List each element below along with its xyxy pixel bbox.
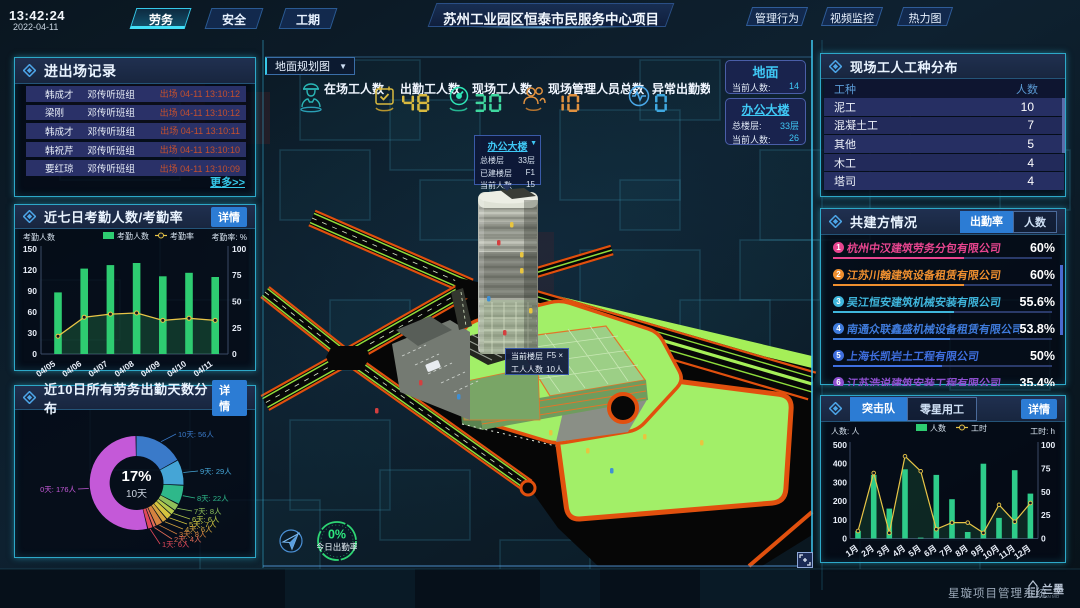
svg-text:5月: 5月 xyxy=(906,543,923,559)
svg-text:100: 100 xyxy=(1041,440,1055,450)
svg-text:0: 0 xyxy=(32,349,37,359)
svg-text:9天: 29人: 9天: 29人 xyxy=(200,467,232,476)
svg-text:50: 50 xyxy=(232,297,242,307)
svg-text:30: 30 xyxy=(28,328,38,338)
svg-text:考勤人数: 考勤人数 xyxy=(117,231,149,241)
svg-text:100: 100 xyxy=(833,515,847,525)
svg-text:100: 100 xyxy=(232,244,246,254)
svg-text:异常出勤数: 异常出勤数 xyxy=(652,81,710,96)
svg-text:人数: 人数 xyxy=(930,423,946,433)
svg-text:90: 90 xyxy=(28,286,38,296)
svg-text:0%: 0% xyxy=(328,528,346,542)
svg-text:7月: 7月 xyxy=(938,543,955,559)
svg-text:考勤率: 考勤率 xyxy=(170,231,194,241)
svg-text:N: N xyxy=(297,531,300,536)
svg-text:25: 25 xyxy=(1041,510,1051,520)
svg-text:现场工人数: 现场工人数 xyxy=(472,81,533,96)
svg-text:6月: 6月 xyxy=(922,543,939,559)
svg-text:1天: 6人: 1天: 6人 xyxy=(162,540,190,549)
svg-text:150: 150 xyxy=(23,244,37,254)
svg-text:12月: 12月 xyxy=(1012,543,1032,561)
svg-text:25: 25 xyxy=(232,323,242,333)
svg-text:10天: 56人: 10天: 56人 xyxy=(178,430,214,439)
svg-text:0: 0 xyxy=(842,534,847,544)
svg-text:今日出勤率: 今日出勤率 xyxy=(317,542,357,552)
svg-text:500: 500 xyxy=(833,440,847,450)
svg-text:10天: 10天 xyxy=(126,489,147,500)
svg-text:8月: 8月 xyxy=(953,543,970,559)
svg-text:4月: 4月 xyxy=(891,543,908,559)
svg-text:0: 0 xyxy=(232,349,237,359)
svg-text:0: 0 xyxy=(1041,534,1046,544)
svg-text:400: 400 xyxy=(833,459,847,469)
svg-text:120: 120 xyxy=(23,265,37,275)
svg-text:50: 50 xyxy=(1041,487,1051,497)
svg-text:75: 75 xyxy=(232,270,242,280)
svg-text:人数: 人: 人数: 人 xyxy=(831,426,859,436)
svg-text:17%: 17% xyxy=(121,468,151,485)
svg-text:工时: h: 工时: h xyxy=(1030,426,1055,436)
svg-text:1月: 1月 xyxy=(844,543,861,559)
svg-text:工时: 工时 xyxy=(971,423,987,433)
svg-text:0天: 176人: 0天: 176人 xyxy=(40,485,76,494)
svg-text:考勤人数: 考勤人数 xyxy=(23,232,55,242)
svg-text:8天: 22人: 8天: 22人 xyxy=(197,494,229,503)
svg-text:考勤率: %: 考勤率: % xyxy=(211,232,247,242)
svg-text:200: 200 xyxy=(833,496,847,506)
svg-text:出勤工人数: 出勤工人数 xyxy=(400,81,461,96)
svg-text:300: 300 xyxy=(833,477,847,487)
svg-text:75: 75 xyxy=(1041,463,1051,473)
svg-text:2月: 2月 xyxy=(859,543,876,559)
svg-text:60: 60 xyxy=(28,307,38,317)
svg-text:3月: 3月 xyxy=(875,543,892,559)
